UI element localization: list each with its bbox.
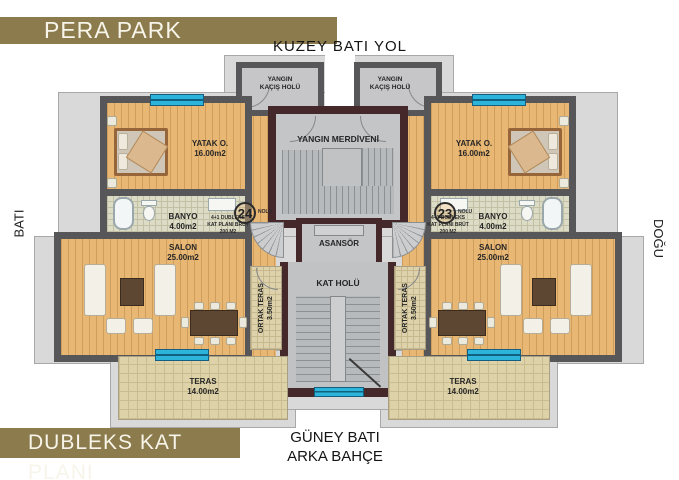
sofa [500, 264, 522, 316]
nightstand [559, 178, 569, 188]
dining-table [190, 310, 238, 336]
chair [442, 337, 452, 345]
chair [226, 337, 236, 345]
window [150, 94, 204, 106]
chair [474, 337, 484, 345]
label-fire-escape-hall-right: YANGIN KAÇIŞ HOLÜ [352, 76, 428, 92]
label-fire-stairs: YANGIN MERDİVENİ [276, 134, 400, 145]
label-living-left: SALON 25.00m2 [143, 243, 223, 263]
window [155, 349, 209, 361]
coffee-table [120, 278, 144, 306]
sofa [570, 264, 592, 316]
armchair [550, 318, 570, 334]
sink [208, 198, 236, 211]
compass-north-road: KUZEY BATI YOL [230, 38, 450, 55]
label-bedroom-left: YATAK O. 16.00m2 [160, 139, 260, 159]
label-fire-escape-hall-left: YANGIN KAÇIŞ HOLÜ [242, 76, 318, 92]
chair [487, 317, 495, 328]
elevator-cab [314, 225, 364, 236]
chair [210, 337, 220, 345]
nightstand [107, 116, 117, 126]
compass-south-garden: GÜNEY BATI ARKA BAHÇE [245, 428, 425, 466]
stair-flight [362, 148, 394, 188]
coffee-table [532, 278, 556, 306]
chair [194, 302, 204, 310]
bathtub [113, 197, 134, 230]
stair-flight [282, 186, 394, 214]
armchair [523, 318, 543, 334]
window [467, 349, 521, 361]
unit-desc: 4+1 DUBLEKS KAT PLANI BRÜT 200 M2 [196, 215, 260, 236]
compass-east: DOĞU [638, 220, 678, 256]
chair [474, 302, 484, 310]
label-terrace-right: TERAS 14.00m2 [418, 377, 508, 397]
dining-table [438, 310, 486, 336]
pillow [548, 133, 558, 150]
label-floor-hall: KAT HOLÜ [294, 278, 382, 289]
chair [429, 317, 437, 328]
chair [458, 337, 468, 345]
chair [226, 302, 236, 310]
label-common-terrace-left: ORTAK TERAS 3.50m2 [248, 266, 284, 350]
label-elevator: ASANSÖR [302, 239, 376, 249]
floor-plan-canvas: YANGIN KAÇIŞ HOLÜ YANGIN KAÇIŞ HOLÜ YANG… [0, 0, 679, 480]
stair-flight [282, 150, 322, 186]
label-living-right: SALON 25.00m2 [453, 243, 533, 263]
nightstand [107, 178, 117, 188]
window [314, 387, 364, 397]
stair-divider [330, 296, 346, 382]
bathtub [542, 197, 563, 230]
label-bedroom-right: YATAK O. 16.00m2 [424, 139, 524, 159]
chair [181, 317, 189, 328]
chair [194, 337, 204, 345]
pillow [118, 133, 128, 150]
compass-west: BATI [0, 205, 38, 241]
sofa [154, 264, 176, 316]
chair [239, 317, 247, 328]
armchair [106, 318, 126, 334]
armchair [133, 318, 153, 334]
chair [442, 302, 452, 310]
chair [458, 302, 468, 310]
unit-desc: 4+1 DUBLEKS KAT PLANI BRÜT 200 M2 [416, 215, 480, 236]
sofa [84, 264, 106, 316]
nightstand [559, 116, 569, 126]
plan-title-banner: DUBLEKS KAT PLANI [0, 428, 240, 458]
label-common-terrace-right: ORTAK TERAS 3.50m2 [392, 266, 428, 350]
unit-suffix: NOLU [258, 209, 272, 216]
label-terrace-left: TERAS 14.00m2 [158, 377, 248, 397]
stair-landing [322, 148, 362, 190]
window [472, 94, 526, 106]
chair [210, 302, 220, 310]
